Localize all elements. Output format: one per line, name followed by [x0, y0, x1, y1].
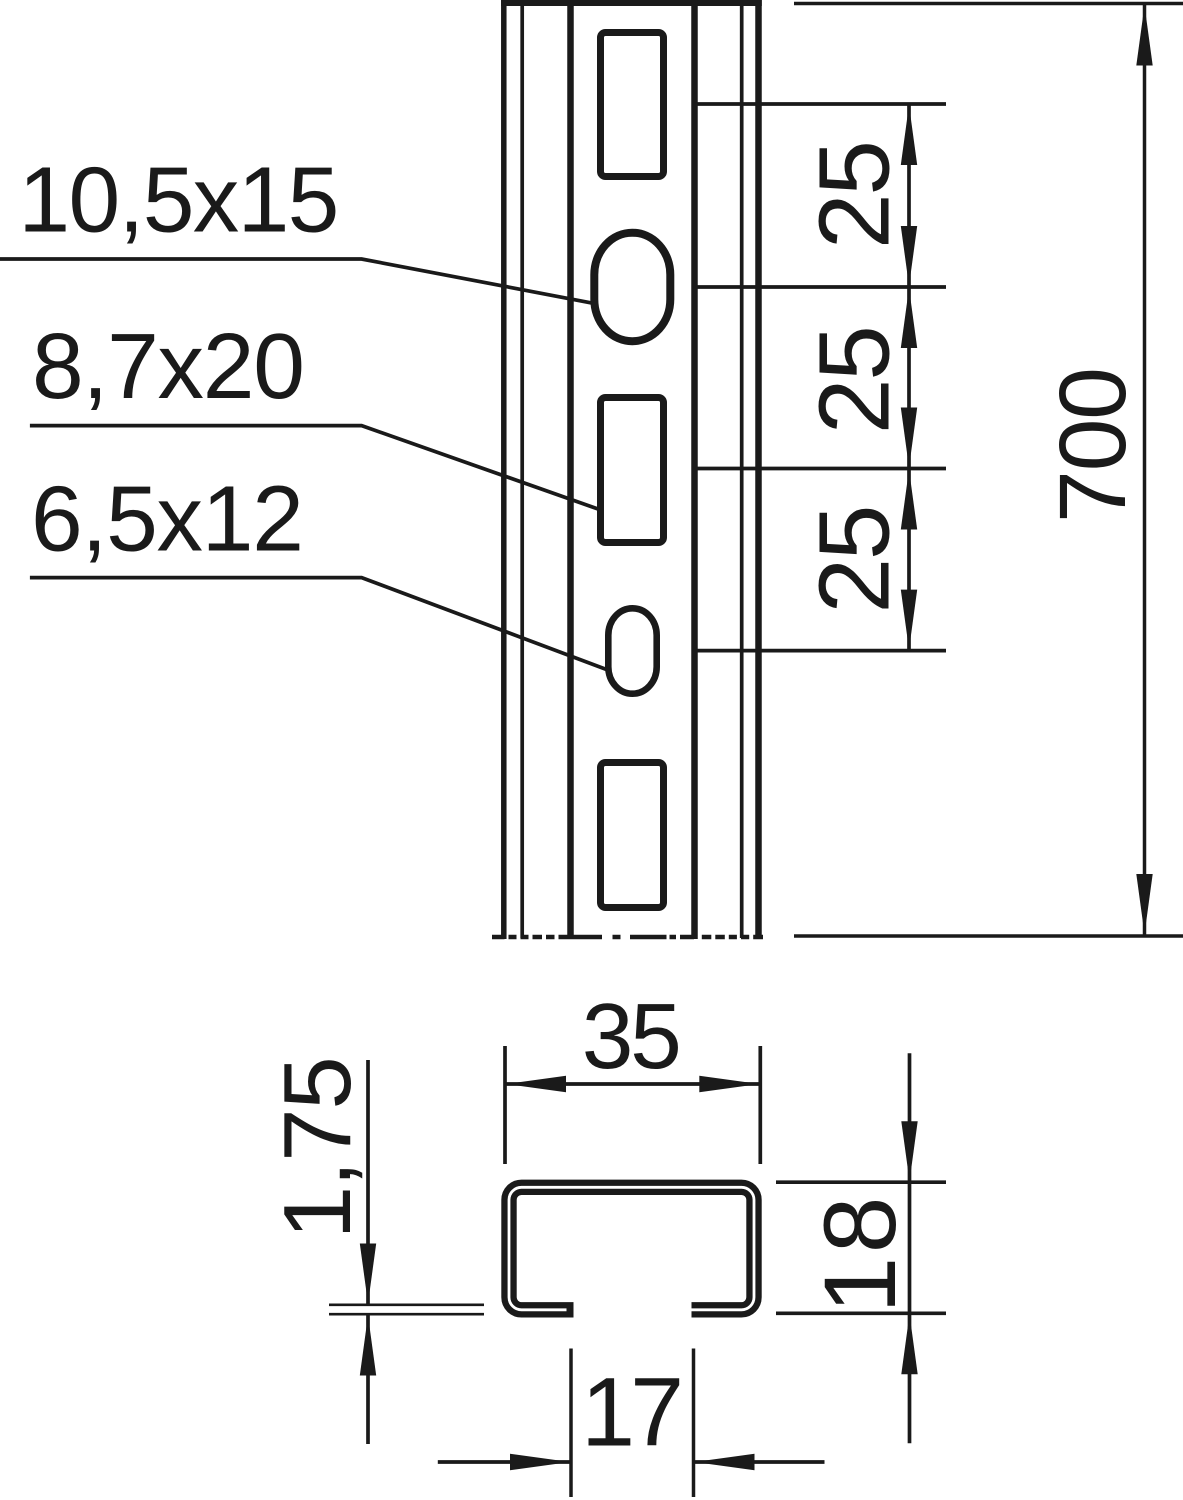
svg-text:17: 17 — [581, 1357, 684, 1466]
svg-text:25: 25 — [798, 140, 910, 249]
svg-text:10,5x15: 10,5x15 — [18, 148, 339, 252]
svg-text:18: 18 — [803, 1197, 917, 1314]
svg-text:25: 25 — [798, 505, 910, 614]
svg-text:8,7x20: 8,7x20 — [32, 314, 305, 418]
svg-text:700: 700 — [1040, 367, 1146, 523]
svg-text:6,5x12: 6,5x12 — [31, 467, 304, 571]
svg-text:35: 35 — [582, 984, 682, 1088]
svg-text:25: 25 — [798, 325, 910, 434]
svg-text:1,75: 1,75 — [264, 1056, 371, 1239]
